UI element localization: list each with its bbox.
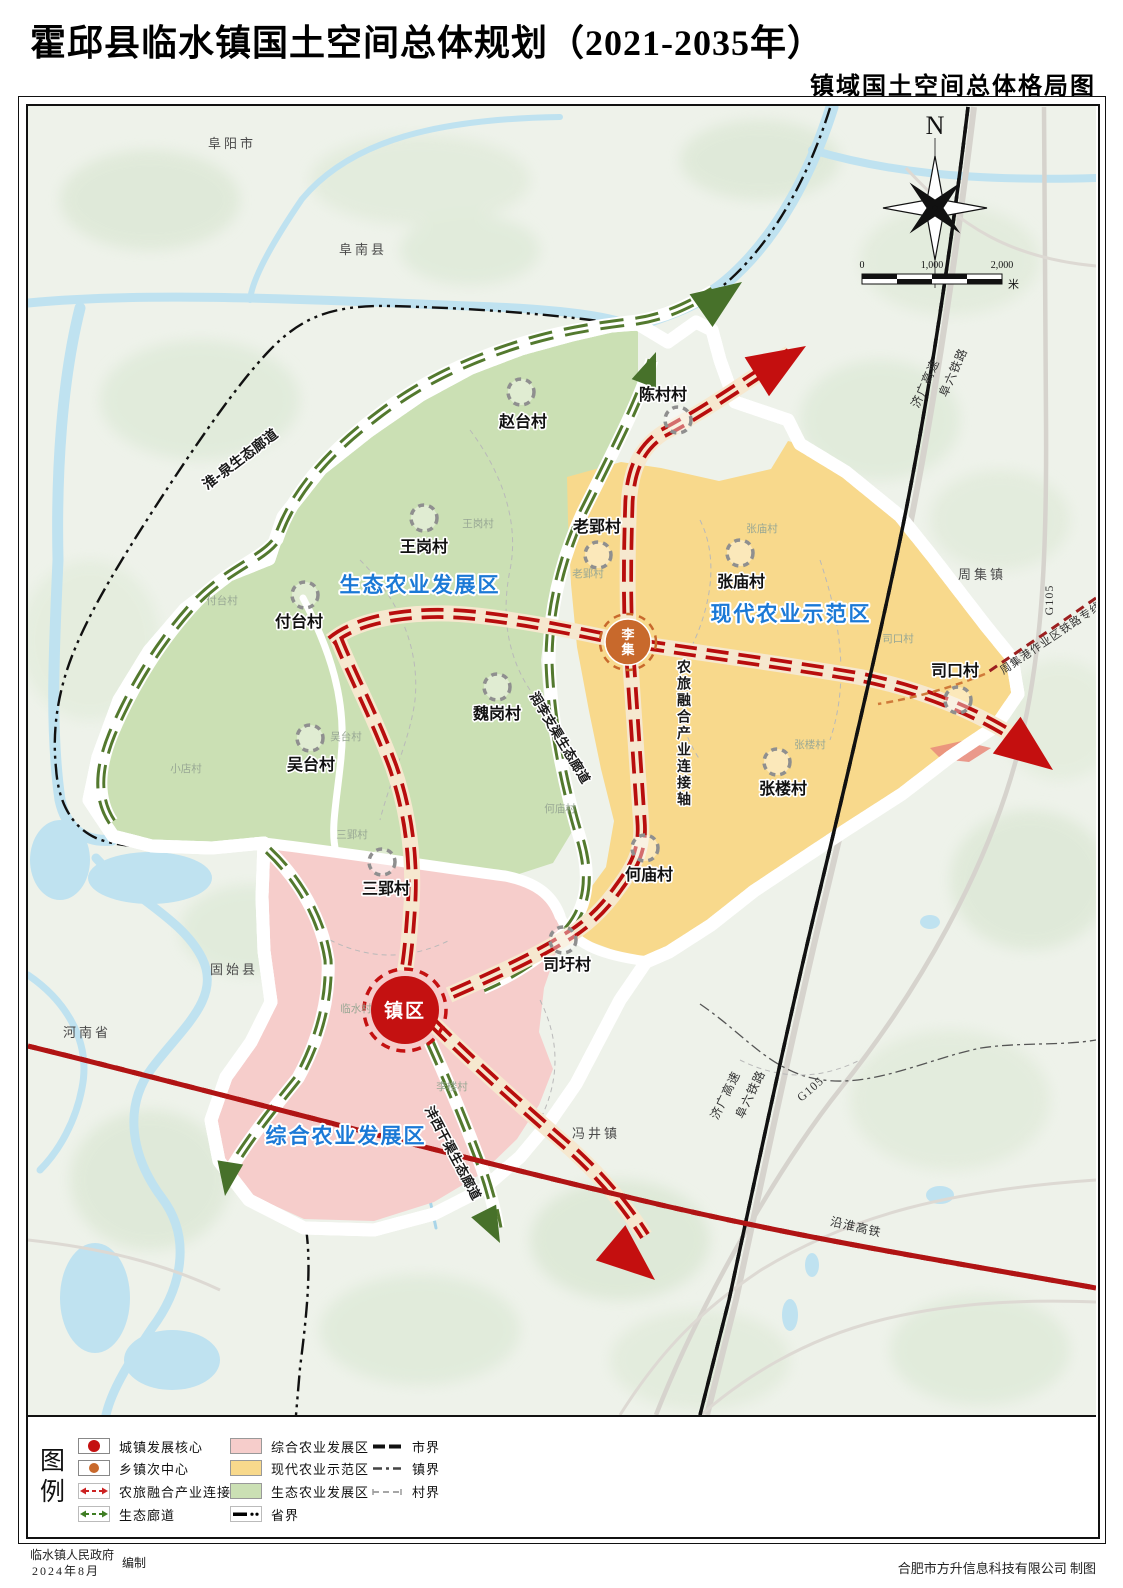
svg-text:2,000: 2,000 (991, 260, 1014, 271)
legend-heading: 图例 (40, 1446, 68, 1508)
credit-date: 2024年8月 (32, 1562, 100, 1579)
svg-text:G105: G105 (1042, 585, 1056, 616)
svg-text:王岗村: 王岗村 (462, 517, 494, 530)
legend-item-zone-eco: 生态农业发展区 (230, 1482, 369, 1500)
legend-item-city-boundary: 市界 (371, 1437, 440, 1455)
label-zone-comprehensive: 综合农业发展区 (266, 1124, 427, 1148)
label-laoying: 老郢村 (572, 517, 621, 536)
svg-text:付台村: 付台村 (206, 594, 238, 607)
label-zhanglou: 张楼村 (759, 779, 807, 798)
label-gushi: 固始县 (210, 962, 258, 977)
label-hemiao: 何庙村 (625, 865, 673, 884)
core-swatch-icon (78, 1438, 110, 1454)
label-sikou: 司口村 (931, 661, 979, 680)
svg-text:临水村: 临水村 (340, 1002, 372, 1015)
svg-text:米: 米 (1008, 278, 1019, 291)
label-zhangmiao: 张庙村 (717, 572, 765, 591)
legend-item-zone-modern: 现代农业示范区 (230, 1459, 369, 1477)
legend-item-province-boundary: 省界 (230, 1505, 299, 1523)
legend-item-axis: 农旅融合产业连接轴 (78, 1482, 245, 1500)
label-henan: 河南省 (63, 1025, 111, 1040)
axis-swatch-icon (78, 1483, 110, 1499)
label-zhouji: 周集镇 (958, 567, 1006, 582)
subcenter-liji-label: 李集 (620, 627, 635, 658)
svg-text:三郢村: 三郢村 (336, 828, 368, 841)
subcenter-swatch-icon (78, 1460, 110, 1476)
label-zone-eco: 生态农业发展区 (340, 573, 501, 597)
city-boundary-swatch-icon (371, 1438, 403, 1454)
svg-text:司口村: 司口村 (882, 632, 914, 645)
label-axis-corridor: 农旅融合产业连接轴 (676, 659, 692, 808)
svg-text:吴台村: 吴台村 (330, 730, 362, 743)
label-siwei: 司圩村 (543, 955, 591, 974)
label-funan: 阜南县 (339, 242, 387, 257)
label-chencun: 陈村村 (639, 385, 687, 404)
map-canvas: 李集 镇区 小店村 临水村 李楼村 三郢村 老郢村 何庙村 司口村 张楼村 张庙… (28, 106, 1096, 1415)
village-boundary-swatch-icon (371, 1483, 403, 1499)
core-townarea-label: 镇区 (384, 999, 426, 1022)
legend-item-village-boundary: 村界 (371, 1482, 440, 1500)
legend-item-town-boundary: 镇界 (371, 1459, 440, 1477)
legend-item-zone-comprehensive: 综合农业发展区 (230, 1437, 369, 1455)
eco-corridor-swatch-icon (78, 1506, 110, 1522)
page-title: 霍邱县临水镇国土空间总体规划（2021-2035年） (30, 14, 824, 66)
label-wanggang: 王岗村 (400, 537, 448, 556)
legend-item-eco-corridor: 生态廊道 (78, 1505, 175, 1523)
label-wutai: 吴台村 (287, 755, 335, 774)
north-label: N (926, 111, 945, 140)
province-boundary-swatch-icon (230, 1506, 262, 1522)
svg-text:张楼村: 张楼村 (794, 738, 826, 751)
svg-text:1,000: 1,000 (921, 260, 944, 271)
credit-org: 临水镇人民政府 (30, 1546, 114, 1563)
label-weigang: 魏岗村 (472, 704, 521, 723)
credit-role: 编制 (122, 1554, 146, 1571)
svg-text:张庙村: 张庙村 (746, 522, 778, 535)
label-fengjing: 冯井镇 (572, 1126, 620, 1141)
label-futai: 付台村 (275, 612, 323, 631)
label-zone-modern: 现代农业示范区 (711, 602, 872, 626)
plan-map-page: 霍邱县临水镇国土空间总体规划（2021-2035年） 镇域国土空间总体格局图 (0, 0, 1123, 1588)
town-boundary-swatch-icon (371, 1460, 403, 1476)
label-fuyang: 阜阳市 (208, 136, 256, 151)
label-sanying: 三郢村 (362, 879, 410, 898)
svg-text:老郢村: 老郢村 (572, 567, 604, 580)
legend-item-subcenter: 乡镇次中心 (78, 1459, 189, 1477)
label-zhaotai: 赵台村 (498, 412, 547, 431)
legend-item-core: 城镇发展核心 (78, 1437, 203, 1455)
core-townarea: 镇区 (364, 969, 446, 1051)
svg-text:何庙村: 何庙村 (544, 802, 576, 815)
svg-text:李楼村: 李楼村 (436, 1080, 468, 1093)
svg-text:小店村: 小店村 (170, 762, 202, 775)
svg-text:0: 0 (860, 260, 865, 271)
map-svg: 李集 镇区 小店村 临水村 李楼村 三郢村 老郢村 何庙村 司口村 张楼村 张庙… (28, 106, 1096, 1415)
credit-cartographer: 合肥市方升信息科技有限公司 制图 (898, 1558, 1096, 1577)
